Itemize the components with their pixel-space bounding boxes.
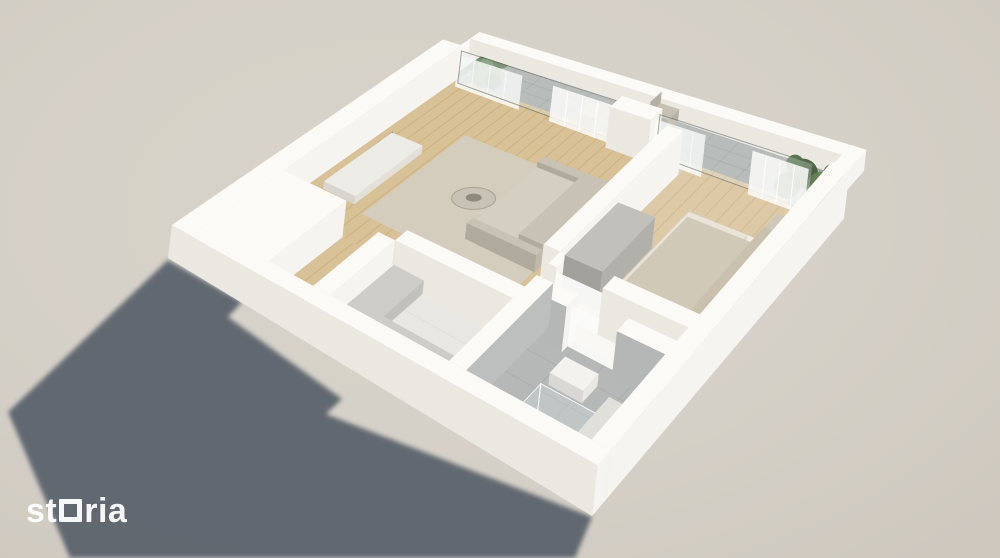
real-estate-listing-photo: stria	[0, 0, 1000, 558]
watermark-square-o-glyph	[59, 499, 82, 522]
watermark-text-st: st	[26, 492, 57, 530]
watermark-text-ria: ria	[84, 492, 127, 530]
coffee-table-tray	[466, 194, 482, 202]
apartment-3d-floor-plan-render	[0, 0, 1000, 558]
storia-watermark-logo: stria	[26, 494, 127, 528]
